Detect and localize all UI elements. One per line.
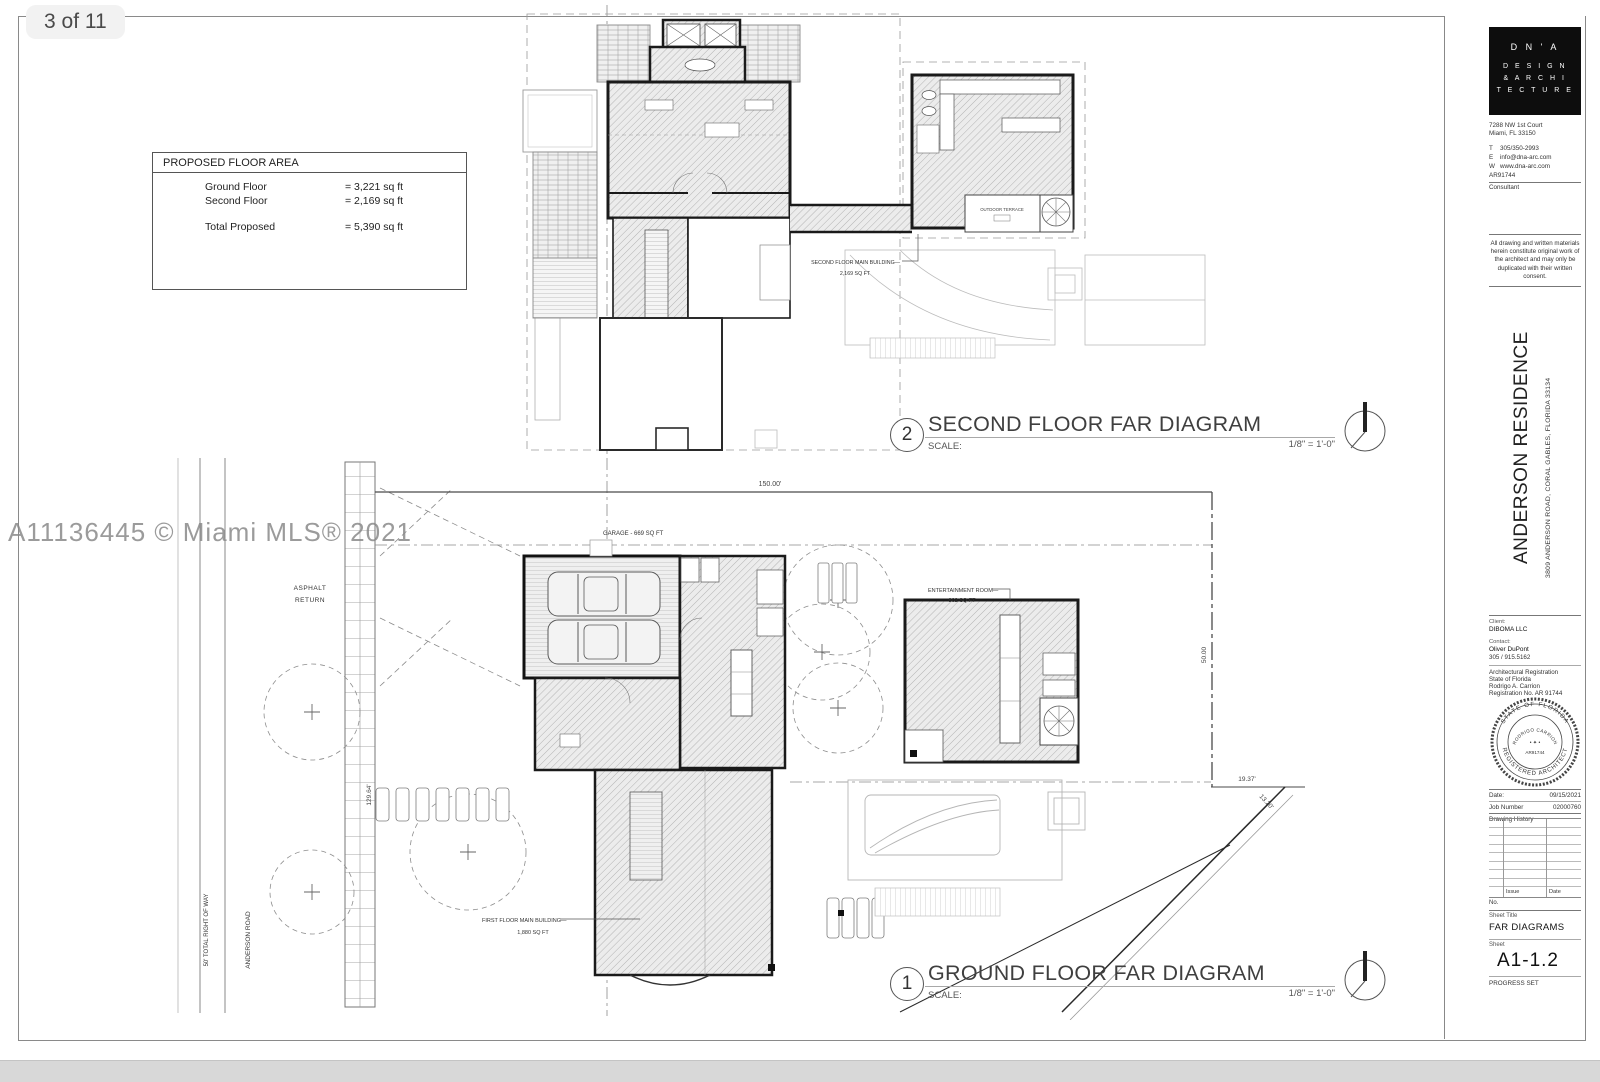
garage: GARAGE - 669 SQ FT xyxy=(524,531,680,678)
diagram-number-circle: 2 xyxy=(890,418,924,452)
mls-watermark: A11136445 © Miami MLS® 2021 xyxy=(8,517,412,548)
firm-email: info@dna-arc.com xyxy=(1500,153,1552,162)
stair-corridor xyxy=(613,218,790,318)
bottom-bar xyxy=(0,1060,1600,1082)
divider xyxy=(1489,615,1581,616)
job-number-value: 02000760 xyxy=(1553,804,1581,812)
asphalt-return-label: ASPHALT xyxy=(294,585,327,592)
north-arrow-icon xyxy=(1342,950,1388,1010)
outdoor-terrace xyxy=(965,195,1040,232)
main-building-area-label: 1,880 SQ FT xyxy=(517,930,549,936)
double-height-hall xyxy=(600,318,722,450)
sheet-title-label: Sheet Title xyxy=(1489,911,1581,922)
sheet-label: Sheet xyxy=(1489,940,1581,949)
table-row: Second Floor = 2,169 sq ft xyxy=(153,195,466,209)
seal-star: • ✦ • xyxy=(1530,740,1541,746)
firm-address: 7288 NW 1st CourtMiami, FL 33150 xyxy=(1489,122,1543,138)
firm-website: www.dna-arc.com xyxy=(1500,162,1550,171)
second-floor-building-label: SECOND FLOOR MAIN BUILDING— 2,169 SQ FT xyxy=(811,234,918,277)
second-floor-plan: OUTDOOR TERRACE SECOND FLOOR MAIN BUILDI… xyxy=(505,5,1220,467)
right-wing: OUTDOOR TERRACE xyxy=(912,75,1073,232)
svg-text:2,169 SQ FT: 2,169 SQ FT xyxy=(840,271,871,277)
dimension-right2: 19.37' xyxy=(1238,776,1256,783)
row-label: Ground Floor xyxy=(205,181,267,193)
stairs xyxy=(630,792,662,880)
main-building-label: FIRST FLOOR MAIN BUILDING— xyxy=(482,918,567,924)
diagram-title: SECOND FLOOR FAR DIAGRAM xyxy=(928,412,1261,437)
entertainment-room xyxy=(905,600,1078,762)
copyright-note: All drawing and written materials herein… xyxy=(1489,234,1581,287)
architect-seal: STATE OF FLORIDA REGISTERED ARCHITECT RO… xyxy=(1489,694,1581,790)
north-arrow-icon xyxy=(1342,401,1388,461)
centerlines xyxy=(375,458,1212,1016)
bay-window-curve xyxy=(630,975,710,985)
table-row: Ground Floor = 3,221 sq ft xyxy=(153,181,466,195)
issue-column-label: Issue xyxy=(1506,889,1519,895)
trellis xyxy=(875,888,1000,916)
spiral-stair xyxy=(1040,698,1078,745)
drawing-history-table: Issue Date xyxy=(1489,818,1581,898)
client-label: Client: xyxy=(1489,619,1581,626)
no-label: No. xyxy=(1489,900,1498,906)
road-label: ANDERSON ROAD xyxy=(245,911,252,969)
pool-area-outline xyxy=(848,780,1085,880)
project-title-block: ANDERSON RESIDENCE 3809 ANDERSON ROAD, C… xyxy=(1489,316,1581,616)
client-name: DIBOMA LLC xyxy=(1489,626,1581,634)
dimension-diagonal: 13.20' xyxy=(1258,793,1275,811)
diagram-number-circle: 1 xyxy=(890,967,924,1001)
sheet-number: A1-1.2 xyxy=(1489,949,1581,976)
progress-set-label: PROGRESS SET xyxy=(1489,977,1581,987)
dimension-left: 129.64' xyxy=(366,784,373,805)
car xyxy=(548,620,660,664)
ground-floor-diagram-title: 1 GROUND FLOOR FAR DIAGRAM SCALE: 1/8" =… xyxy=(890,957,1410,1017)
stairs xyxy=(645,230,668,318)
table-row: Total Proposed = 5,390 sq ft xyxy=(153,221,466,235)
title-underline xyxy=(925,437,1335,438)
svg-text:SECOND FLOOR MAIN BUILDING—: SECOND FLOOR MAIN BUILDING— xyxy=(811,260,901,266)
firm-contact: T305/350-2993 Einfo@dna-arc.com Wwww.dna… xyxy=(1489,144,1581,171)
job-number-label: Job Number xyxy=(1489,804,1523,812)
firm-phone: 305/350-2993 xyxy=(1500,144,1539,153)
contact-name: Oliver DuPont xyxy=(1489,646,1581,654)
entertainment-area-label: 802 SQ FT xyxy=(949,598,977,604)
sink-fixture xyxy=(922,107,936,116)
second-floor-main-building xyxy=(608,82,790,218)
sheet-title-value: FAR DIAGRAMS xyxy=(1489,922,1581,939)
seal-number-text: AR91744 xyxy=(1525,750,1545,755)
drawing-sheet: 3 of 11 PROPOSED FLOOR AREA Ground Floor… xyxy=(0,0,1600,1082)
date-value: 09/15/2021 xyxy=(1549,792,1581,800)
svg-text:RETURN: RETURN xyxy=(295,597,325,604)
contact-label: Contact: xyxy=(1489,639,1581,646)
project-name: ANDERSON RESIDENCE xyxy=(1511,334,1533,564)
page-count-badge: 3 of 11 xyxy=(26,5,125,39)
scale-value: 1/8" = 1'-0" xyxy=(1220,439,1335,450)
floor-area-table: PROPOSED FLOOR AREA Ground Floor = 3,221… xyxy=(152,152,467,290)
project-address: 3809 ANDERSON ROAD, CORAL GABLES, FLORID… xyxy=(1545,316,1552,578)
row-value: = 2,169 sq ft xyxy=(345,195,403,207)
row-label: Second Floor xyxy=(205,195,267,207)
terrace-label: OUTDOOR TERRACE xyxy=(980,207,1024,212)
title-block: D N ' A D E S I G N & A R C H I T E C T … xyxy=(1444,16,1586,1039)
row-value: = 3,221 sq ft xyxy=(345,181,403,193)
firm-logo: D N ' A D E S I G N & A R C H I T E C T … xyxy=(1489,27,1581,115)
spiral-stair xyxy=(1040,195,1073,232)
date-column-label: Date xyxy=(1549,889,1561,895)
connector-bridge xyxy=(790,205,912,232)
car xyxy=(548,572,660,616)
garage-label: GARAGE - 669 SQ FT xyxy=(603,531,664,537)
column-markers xyxy=(768,750,917,971)
bar-counter xyxy=(1000,615,1020,743)
sheet-title-section: Sheet Title FAR DIAGRAMS Sheet A1-1.2 PR… xyxy=(1489,910,1581,987)
site-boundary: 150.00' 50.00 19.37' 13.20' 129.64' xyxy=(366,481,1305,811)
contact-phone: 305 / 915.5162 xyxy=(1489,654,1581,662)
floor-area-title: PROPOSED FLOOR AREA xyxy=(153,153,466,173)
elevator-lobby xyxy=(650,20,745,83)
consultant-label: Consultant xyxy=(1489,184,1519,192)
date-label: Date: xyxy=(1489,792,1504,800)
scale-value: 1/8" = 1'-0" xyxy=(1220,988,1335,999)
entertainment-label: ENTERTAINMENT ROOM— xyxy=(928,588,999,594)
trellis-below xyxy=(870,338,995,358)
kitchen-island xyxy=(731,650,752,716)
row-value: = 5,390 sq ft xyxy=(345,221,403,233)
client-section: Client: DIBOMA LLC Contact: Oliver DuPon… xyxy=(1489,619,1581,697)
diagram-title: GROUND FLOOR FAR DIAGRAM xyxy=(928,961,1265,986)
title-underline xyxy=(925,986,1335,987)
scale-label: SCALE: xyxy=(928,441,962,452)
dimension-top: 150.00' xyxy=(759,481,782,488)
sink-fixture xyxy=(922,91,936,100)
row-label: Total Proposed xyxy=(205,221,275,233)
firm-registration: AR91744 xyxy=(1489,172,1581,183)
scale-label: SCALE: xyxy=(928,990,962,1001)
dimension-right: 50.00 xyxy=(1201,646,1208,663)
right-of-way-label: 50' TOTAL RIGHT OF WAY xyxy=(204,894,210,967)
arch-registration: Architectural Registration xyxy=(1489,669,1581,676)
